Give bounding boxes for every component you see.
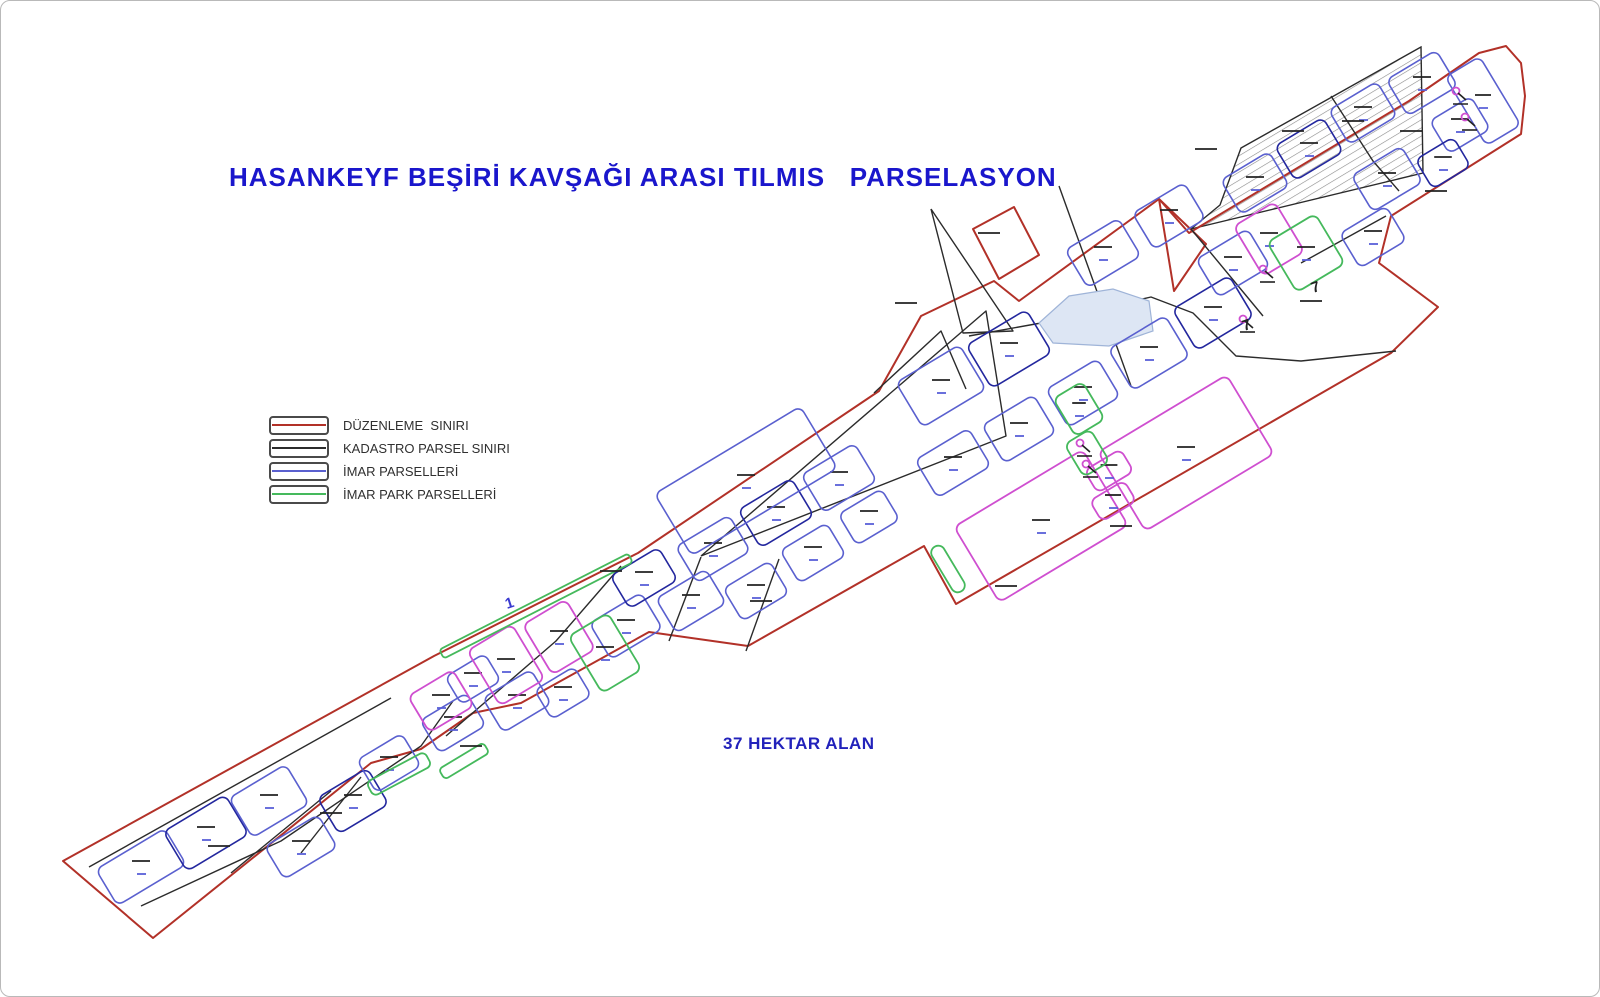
map-title: HASANKEYF BEŞİRİ KAVŞAĞI ARASI TILMIS PA… bbox=[229, 162, 1057, 193]
imar-parcel bbox=[96, 828, 186, 905]
imar-parcel-outline bbox=[1340, 206, 1407, 268]
parcel-map: 177 bbox=[1, 1, 1600, 997]
park-parcel bbox=[929, 543, 968, 595]
park-parcel-outline bbox=[568, 613, 641, 693]
survey-symbol-tick bbox=[1082, 445, 1090, 452]
imar-parcel-outline bbox=[838, 489, 899, 546]
legend-swatch-duzenleme-siniri bbox=[269, 416, 329, 435]
legend-label-imar-parselleri: İMAR PARSELLERİ bbox=[343, 464, 458, 479]
park-parcel bbox=[1053, 381, 1105, 436]
imar-parcel bbox=[1132, 183, 1205, 250]
map-text-glyph: 7 bbox=[1309, 278, 1322, 297]
kadastro-hatched-parcel bbox=[1191, 47, 1423, 229]
park-parcel-outline bbox=[439, 553, 632, 658]
map-canvas: 177 HASANKEYF BEŞİRİ KAVŞAĞI ARASI TILMI… bbox=[0, 0, 1600, 997]
legend-label-imar-park-parselleri: İMAR PARK PARSELLERİ bbox=[343, 487, 496, 502]
kadastro-line bbox=[446, 566, 621, 736]
legend: DÜZENLEME SINIRIKADASTRO PARSEL SINIRIİM… bbox=[269, 416, 510, 503]
imar-parcel bbox=[723, 561, 789, 621]
imar-parcel bbox=[535, 667, 592, 720]
imar-parcel bbox=[1196, 229, 1270, 298]
park-parcel bbox=[1267, 214, 1345, 293]
legend-swatch-imar-parselleri bbox=[269, 462, 329, 481]
magenta-parcel bbox=[408, 670, 474, 733]
legend-swatch-kadastro-parsel-siniri bbox=[269, 439, 329, 458]
pond bbox=[1039, 289, 1153, 346]
imar-parcel bbox=[838, 489, 899, 546]
imar-parcel bbox=[1046, 359, 1120, 428]
imar-parcel-outline bbox=[96, 828, 186, 905]
imar-parcel-outline bbox=[780, 523, 846, 583]
imar-parcel-outline bbox=[1132, 183, 1205, 250]
legend-item-kadastro-parsel-siniri: KADASTRO PARSEL SINIRI bbox=[269, 439, 510, 457]
park-parcel-outline bbox=[1053, 381, 1105, 436]
imar-parcel bbox=[780, 523, 846, 583]
park-parcel bbox=[439, 553, 632, 658]
imar-parcel-outline bbox=[656, 569, 726, 633]
legend-label-duzenleme-siniri: DÜZENLEME SINIRI bbox=[343, 418, 469, 433]
imar-parcel bbox=[1340, 206, 1407, 268]
imar-parcel-outline bbox=[982, 395, 1056, 464]
imar-parcel bbox=[982, 395, 1056, 464]
imar-parcel-outline bbox=[723, 561, 789, 621]
park-parcel-outline bbox=[929, 543, 968, 595]
magenta-parcel-outline bbox=[408, 670, 474, 733]
park-parcel bbox=[568, 613, 641, 693]
imar-parcel bbox=[163, 795, 248, 872]
imar-parcel bbox=[915, 428, 991, 498]
imar-parcel bbox=[1065, 218, 1141, 288]
park-parcel bbox=[439, 742, 490, 779]
legend-item-imar-parselleri: İMAR PARSELLERİ bbox=[269, 462, 510, 480]
imar-parcel-outline bbox=[915, 428, 991, 498]
imar-parcel-outline bbox=[1065, 218, 1141, 288]
legend-swatch-imar-park-parselleri bbox=[269, 485, 329, 504]
imar-parcel bbox=[656, 569, 726, 633]
park-parcel-outline bbox=[1267, 214, 1345, 293]
imar-parcel-outline bbox=[1196, 229, 1270, 298]
legend-item-duzenleme-siniri: DÜZENLEME SINIRI bbox=[269, 416, 510, 434]
imar-parcel-outline bbox=[1046, 359, 1120, 428]
kadastro-line bbox=[1059, 186, 1131, 386]
legend-label-kadastro-parsel-siniri: KADASTRO PARSEL SINIRI bbox=[343, 441, 510, 456]
area-label: 37 HEKTAR ALAN bbox=[723, 734, 875, 754]
park-parcel-outline bbox=[439, 742, 490, 779]
duzenleme-boundary-attachment bbox=[973, 207, 1039, 279]
kadastro-line bbox=[969, 297, 1396, 361]
kadastro-line bbox=[1191, 229, 1263, 316]
imar-parcel-outline bbox=[535, 667, 592, 720]
legend-item-imar-park-parselleri: İMAR PARK PARSELLERİ bbox=[269, 485, 510, 503]
duzenleme-boundary-attachment bbox=[1159, 199, 1206, 291]
imar-parcel-outline bbox=[163, 795, 248, 872]
map-text-glyph: 1 bbox=[503, 594, 516, 613]
kadastro-line bbox=[931, 209, 1013, 333]
